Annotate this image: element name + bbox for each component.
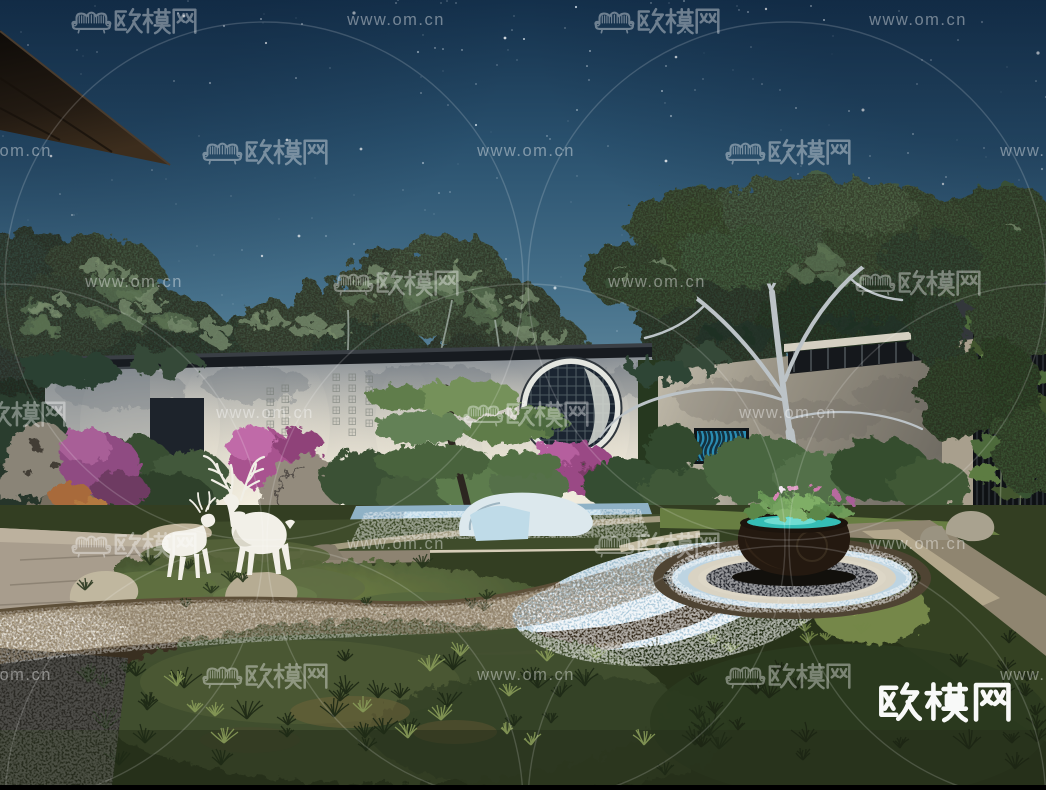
svg-text:www.om.cn: www.om.cn — [868, 535, 967, 553]
svg-text:www.om.cn: www.om.cn — [868, 11, 967, 29]
svg-text:www.om.cn: www.om.cn — [84, 273, 183, 291]
svg-text:www.om.cn: www.om.cn — [346, 535, 445, 553]
svg-text:www.om.cn: www.om.cn — [346, 11, 445, 29]
svg-text:www.om.cn: www.om.cn — [607, 273, 706, 291]
svg-text:www.om.cn: www.om.cn — [999, 666, 1046, 684]
svg-text:www.om.cn: www.om.cn — [999, 142, 1046, 160]
